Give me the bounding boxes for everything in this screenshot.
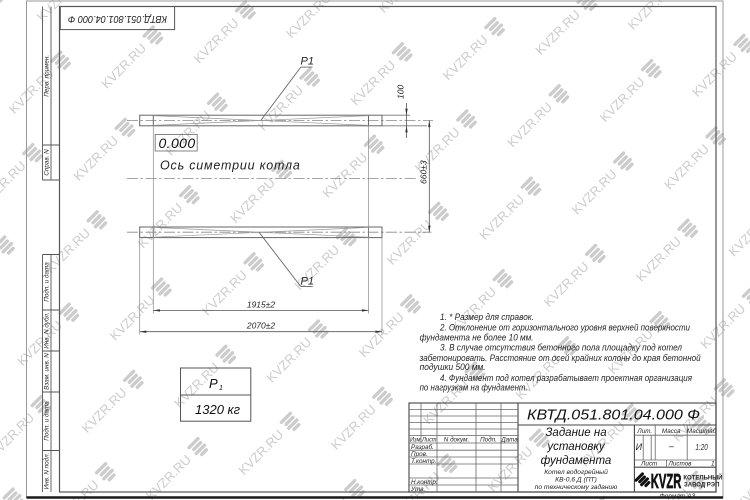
svg-text:2. Отклонение от горизонтальн: 2. Отклонение от горизонтального уровня …	[439, 322, 690, 332]
svg-text:1:20: 1:20	[695, 442, 708, 452]
svg-text:660±3: 660±3	[419, 160, 429, 184]
svg-text:Ось симетрии котла: Ось симетрии котла	[160, 159, 301, 173]
svg-text:Подп.: Подп.	[480, 436, 497, 444]
svg-text:Котел водогрейный: Котел водогрейный	[544, 468, 608, 476]
svg-text:1. * Размер для справок.: 1. * Размер для справок.	[440, 312, 534, 322]
svg-text:Справ. N: Справ. N	[44, 149, 51, 176]
svg-text:–: –	[668, 441, 675, 451]
svg-text:Лист: Лист	[640, 461, 657, 468]
svg-text:ЗАВОД РЭП: ЗАВОД РЭП	[684, 482, 719, 488]
svg-text:Пров.: Пров.	[411, 451, 428, 458]
svg-text:Масса: Масса	[662, 428, 681, 435]
svg-text:Лит.: Лит.	[636, 428, 652, 435]
svg-text:И: И	[636, 442, 643, 452]
svg-text:Задание на: Задание на	[545, 427, 606, 439]
svg-text:Взам. инв. N: Взам. инв. N	[44, 353, 51, 390]
svg-text:по техническому заданию: по техническому заданию	[535, 483, 618, 491]
svg-text:1320 кг: 1320 кг	[195, 402, 241, 417]
svg-text:Подп. и дата: Подп. и дата	[43, 401, 51, 441]
svg-text:Т.контр.: Т.контр.	[411, 458, 436, 465]
svg-text:4. Фундамент под котел разраб: 4. Фундамент под котел разрабатывает про…	[440, 373, 692, 383]
svg-text:КВТД.051.801.04.000 Ф: КВТД.051.801.04.000 Ф	[68, 13, 167, 24]
svg-text:1915±2: 1915±2	[247, 299, 276, 309]
svg-text:P1: P1	[301, 56, 314, 68]
svg-text:Формат А3: Формат А3	[660, 493, 696, 500]
svg-text:0.000: 0.000	[159, 135, 196, 151]
svg-text:3. В случае отсутствия бетонн: 3. В случае отсутствия бетонного пола пл…	[440, 343, 682, 353]
svg-text:Инв. N подл.: Инв. N подл.	[43, 453, 51, 490]
svg-text:N докум.: N докум.	[444, 436, 469, 444]
svg-text:Разраб.: Разраб.	[411, 443, 434, 451]
svg-text:1: 1	[711, 461, 715, 468]
svg-text:100: 100	[396, 85, 406, 99]
svg-text:Н.контр.: Н.контр.	[411, 479, 438, 486]
svg-text:Перв. примен.: Перв. примен.	[44, 55, 51, 97]
svg-text:P1: P1	[301, 276, 314, 288]
svg-text:Листов: Листов	[668, 461, 693, 468]
svg-text:1: 1	[219, 385, 223, 392]
svg-text:Инв. N дубл.: Инв. N дубл.	[43, 312, 51, 348]
svg-text:подушки 500 мм.: подушки 500 мм.	[420, 362, 486, 372]
svg-text:2070±2: 2070±2	[246, 321, 276, 331]
svg-text:Изм.Лист: Изм.Лист	[410, 437, 437, 444]
svg-text:фундамента: фундамента	[541, 455, 612, 467]
svg-text:Масштаб: Масштаб	[687, 427, 717, 435]
svg-text:установку: установку	[546, 441, 606, 453]
svg-text:по нагрузкам на фундамент.: по нагрузкам на фундамент.	[420, 383, 528, 393]
svg-text:Дата: Дата	[500, 437, 518, 444]
svg-text:KVZR: KVZR	[651, 471, 682, 493]
svg-text:КВТД.051.801.04.000 Ф: КВТД.051.801.04.000 Ф	[527, 408, 700, 424]
svg-text:КОТЕЛЬНЫЙ: КОТЕЛЬНЫЙ	[683, 474, 722, 482]
svg-text:Подп. и дата: Подп. и дата	[43, 262, 51, 302]
svg-text:КВ-0,6 Д (ПТ): КВ-0,6 Д (ПТ)	[555, 477, 597, 484]
svg-text:Утв.: Утв.	[410, 486, 425, 493]
svg-text:фундамента не более 10 мм.: фундамента не более 10 мм.	[420, 333, 534, 343]
svg-text:P: P	[209, 376, 218, 391]
